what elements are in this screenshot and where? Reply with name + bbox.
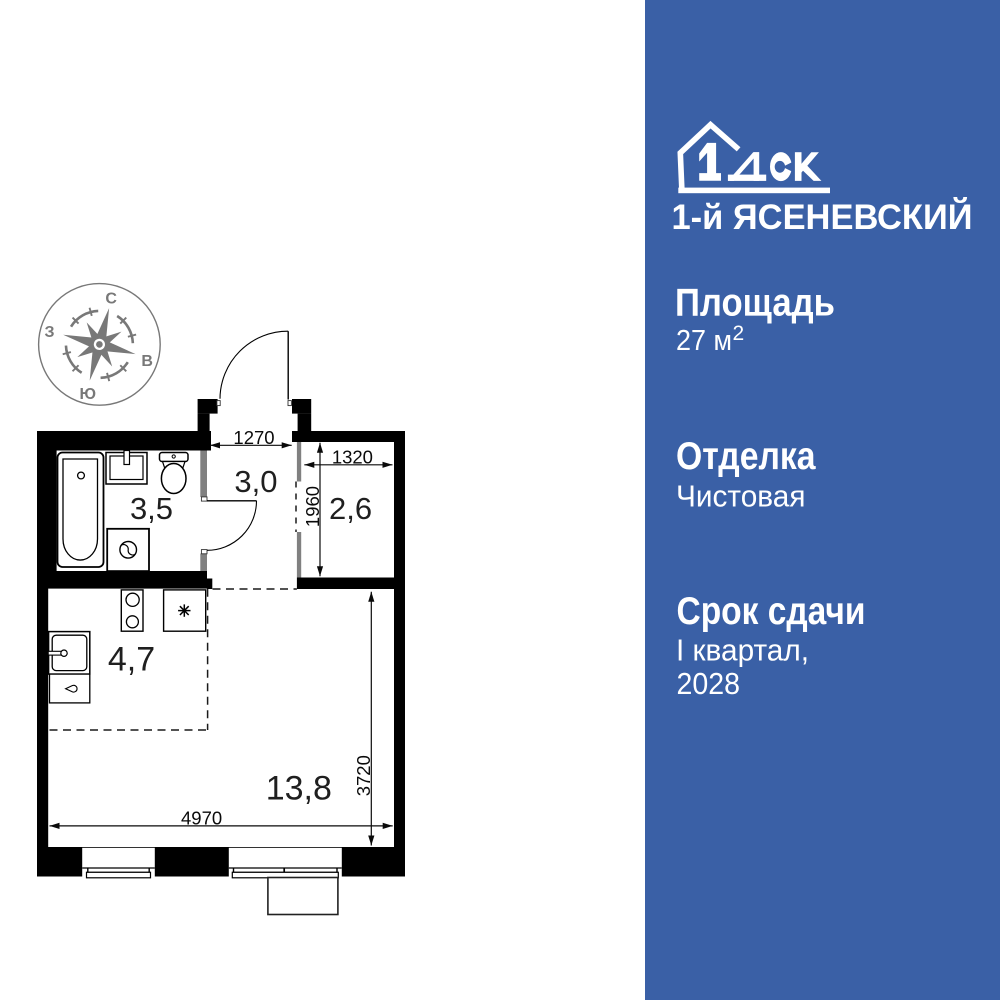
svg-text:Срок сдачи: Срок сдачи — [677, 590, 866, 633]
svg-text:I квартал,: I квартал, — [676, 634, 809, 668]
svg-text:3,5: 3,5 — [130, 491, 173, 526]
svg-text:1960: 1960 — [302, 486, 323, 527]
svg-text:27 м: 27 м — [676, 325, 732, 357]
svg-text:2: 2 — [733, 322, 745, 345]
svg-text:13,8: 13,8 — [266, 770, 332, 808]
svg-text:3720: 3720 — [353, 755, 374, 796]
svg-text:2028: 2028 — [677, 667, 741, 701]
svg-text:4,7: 4,7 — [108, 641, 155, 679]
svg-text:3,0: 3,0 — [234, 464, 277, 499]
svg-text:1320: 1320 — [332, 446, 373, 467]
svg-text:4970: 4970 — [181, 807, 222, 828]
svg-text:1270: 1270 — [233, 427, 274, 448]
svg-text:Ю: Ю — [79, 386, 96, 403]
svg-text:В: В — [141, 353, 153, 370]
svg-text:Чистовая: Чистовая — [676, 480, 806, 514]
svg-text:Отделка: Отделка — [676, 435, 816, 478]
svg-text:З: З — [44, 324, 54, 341]
svg-text:С: С — [105, 291, 117, 308]
svg-text:1-й ЯСЕНЕВСКИЙ: 1-й ЯСЕНЕВСКИЙ — [672, 197, 973, 237]
svg-text:2,6: 2,6 — [329, 491, 372, 526]
svg-text:Площадь: Площадь — [675, 281, 835, 324]
